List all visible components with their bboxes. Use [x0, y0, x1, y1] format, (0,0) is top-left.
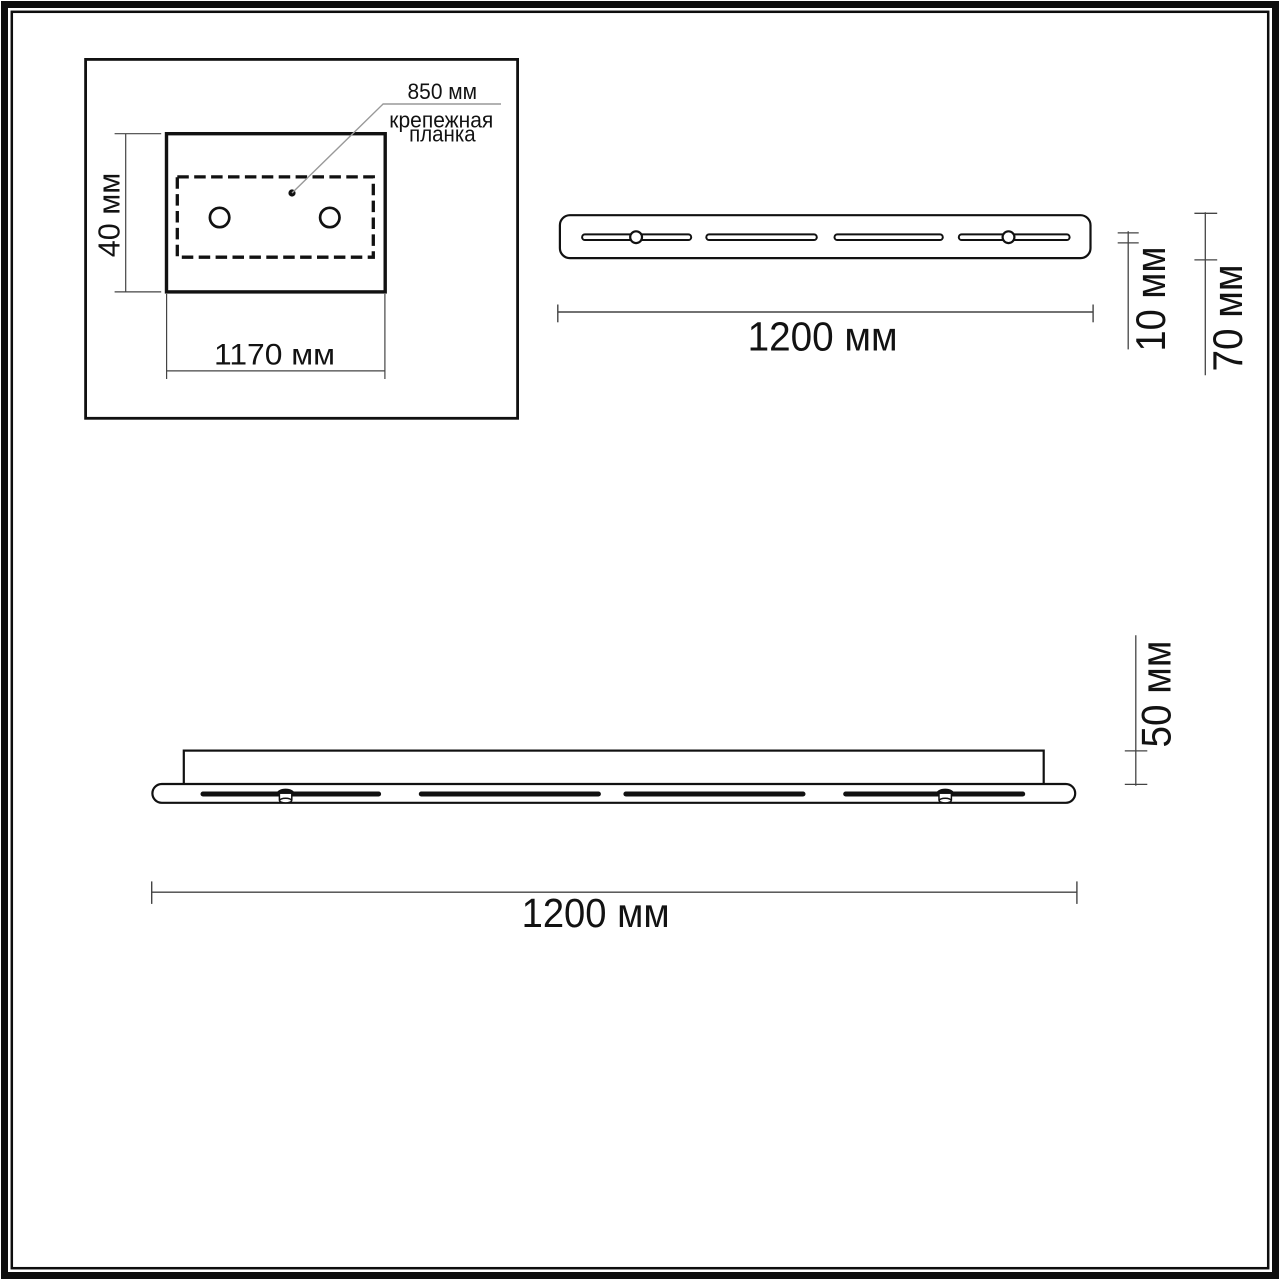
svg-text:1200 мм: 1200 мм [748, 314, 898, 360]
svg-text:10 мм: 10 мм [1127, 247, 1174, 352]
svg-text:70 мм: 70 мм [1204, 265, 1251, 372]
svg-text:850 мм: 850 мм [408, 79, 478, 104]
svg-text:50 мм: 50 мм [1133, 641, 1180, 748]
svg-text:40 мм: 40 мм [92, 173, 127, 258]
svg-text:планка: планка [409, 121, 476, 146]
svg-text:1170 мм: 1170 мм [214, 339, 335, 372]
svg-text:1200 мм: 1200 мм [522, 890, 670, 936]
